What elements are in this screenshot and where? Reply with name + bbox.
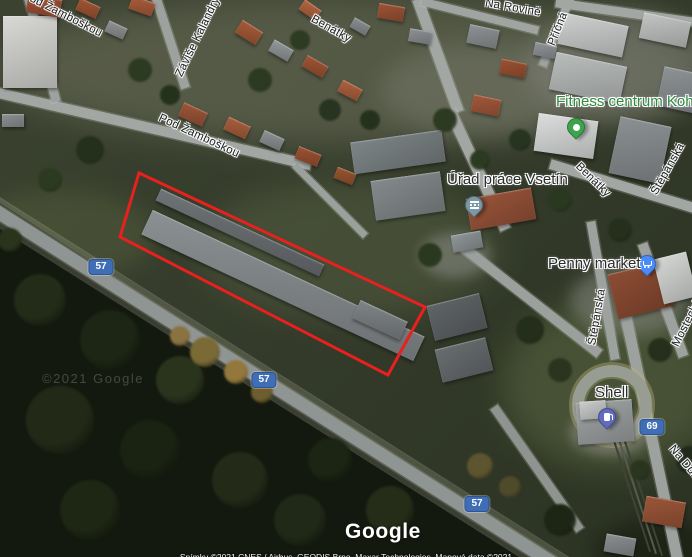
poi-label-fitness-centrum-kohut[interactable]: Fitness centrum Kohút [556,93,692,110]
fuel-pump-icon [604,413,610,421]
tree-cluster [548,188,572,212]
fitness-dot-icon [573,124,580,131]
tree-cluster [516,316,544,344]
tree-cluster [248,68,272,92]
building [2,114,24,127]
map-canvas[interactable]: ©2021 Google od Žamboškou Záviše Kalandr… [0,0,692,557]
poi-label-shell[interactable]: Shell [595,384,628,401]
tree-cluster [648,338,672,362]
tree-cluster [212,452,268,508]
building [3,16,57,88]
road-shield-57-west: 57 [88,259,113,275]
tree-cluster [608,218,632,242]
tree-cluster [308,438,352,482]
tree-cluster [290,30,310,50]
tree-cluster [544,504,576,536]
map-attribution: Snímky ©2021 CNES / Airbus, GEODIS Brno,… [180,552,512,557]
shopping-cart-icon [643,261,652,268]
tree-cluster [499,476,521,498]
fitness-pin[interactable] [565,116,587,146]
government-building-icon [470,201,479,209]
tree-cluster [418,243,442,267]
tree-cluster [14,274,66,326]
tree-cluster [38,168,62,192]
poi-label-penny-market[interactable]: Penny market [548,255,641,272]
tree-cluster [467,453,493,479]
tree-cluster [470,150,490,170]
satellite-imagery [0,0,692,557]
tree-cluster [170,326,190,346]
tree-cluster [630,460,650,480]
tree-cluster [509,129,531,151]
government-office-pin[interactable] [463,194,485,224]
tree-cluster [160,85,180,105]
road-shield-69: 69 [639,419,664,435]
tree-cluster [548,358,572,382]
tree-cluster [26,386,94,454]
tree-cluster [76,136,104,164]
tree-cluster [319,99,341,121]
gas-station-pin[interactable] [596,406,618,436]
tree-cluster [60,480,120,540]
tree-cluster [80,310,140,370]
tree-cluster [433,108,457,132]
tree-cluster [190,337,220,367]
tree-cluster [274,494,326,546]
road-shield-57-south: 57 [464,496,489,512]
road-shield-57-middle: 57 [251,372,276,388]
poi-label-urad-prace-vsetin[interactable]: Úřad práce Vsetín [447,171,568,188]
tree-cluster [360,110,380,130]
tree-cluster [224,360,248,384]
tree-cluster [120,420,180,480]
imagery-watermark: ©2021 Google [42,371,144,386]
tree-cluster [128,58,152,82]
google-logo[interactable]: Google [345,520,421,544]
building [435,337,494,383]
